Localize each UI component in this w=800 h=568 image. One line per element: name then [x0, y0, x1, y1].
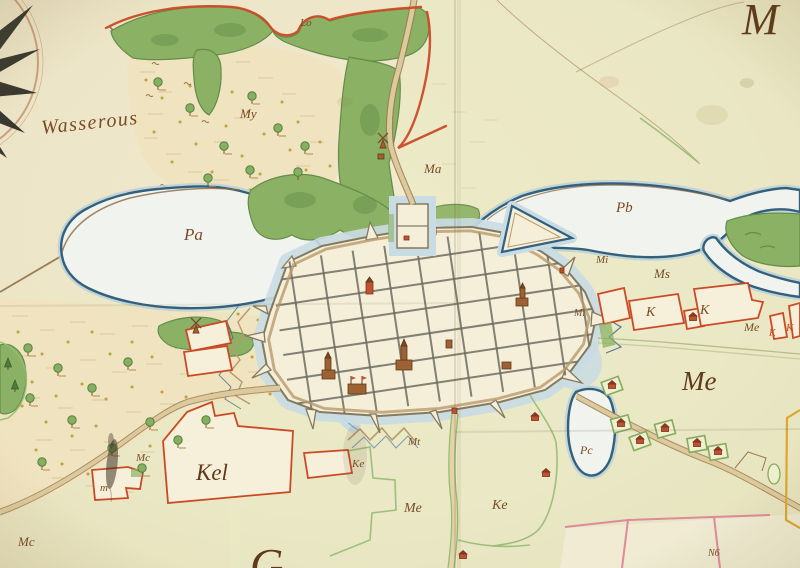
vignette-overlay	[0, 0, 800, 568]
historic-map: Wasserous Lo My Ma Pa Pb Pc Mi Ms Mi K K…	[0, 0, 800, 568]
map-canvas: Wasserous Lo My Ma Pa Pb Pc Mi Ms Mi K K…	[0, 0, 800, 568]
